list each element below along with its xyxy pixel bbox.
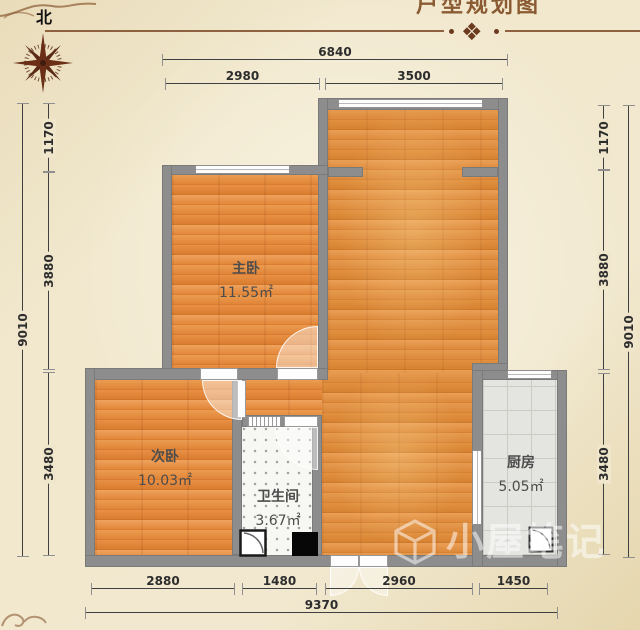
dim-bottom-seg3: 2960	[325, 588, 473, 589]
dim-right-total: 9010	[628, 105, 629, 558]
bathroom-door-icon	[239, 529, 267, 557]
decorative-dot	[494, 29, 499, 34]
wall	[318, 98, 328, 380]
dim-top-seg1: 2980	[165, 83, 320, 84]
dim-top-seg2: 3500	[325, 83, 503, 84]
room-name: 厨房	[471, 452, 571, 472]
master-bedroom-door	[277, 368, 318, 380]
room-area: 3.67㎡	[228, 510, 328, 530]
dim-right-seg2: 3880	[603, 170, 604, 370]
dim-bottom-seg2: 1480	[242, 588, 317, 589]
duct-shaft	[292, 532, 318, 556]
floorplan-canvas: 户型规划图 ❖ 北	[0, 0, 640, 630]
cube-logo-icon	[392, 518, 438, 566]
dim-right-seg1: 1170	[603, 105, 604, 170]
room-area: 11.55㎡	[186, 282, 306, 302]
bathroom-sliding-panel	[247, 416, 281, 427]
wall	[162, 165, 172, 380]
decorative-divider-right	[505, 30, 640, 32]
compass-rose-icon	[12, 32, 74, 94]
room-name: 主卧	[186, 258, 306, 278]
room-label-kitchen: 厨房 5.05㎡	[471, 452, 571, 496]
balcony-double-door	[330, 555, 388, 567]
decorative-divider-left	[45, 30, 444, 32]
north-label: 北	[36, 4, 52, 28]
decorative-dot	[449, 29, 454, 34]
decorative-ornament: ❖	[461, 20, 483, 44]
room-label-second: 次卧 10.03㎡	[105, 446, 225, 490]
dim-bottom-seg1: 2880	[91, 588, 235, 589]
door-swing-arc	[330, 567, 359, 596]
wall-stub	[462, 167, 498, 177]
window	[195, 165, 290, 174]
dim-left-total: 9010	[22, 103, 23, 557]
dim-bottom-total: 9370	[85, 612, 558, 613]
room-area: 10.03㎡	[105, 470, 225, 490]
room-area: 5.05㎡	[471, 476, 571, 496]
dim-left-seg3: 3480	[48, 372, 49, 556]
dim-left-seg2: 3880	[48, 172, 49, 370]
room-name: 卫生间	[228, 486, 328, 506]
watermark-text: 小屋笔记	[446, 523, 606, 561]
wall-stub	[328, 167, 363, 177]
living-room-floor	[328, 110, 498, 373]
wall	[85, 368, 95, 567]
hallway-floor	[242, 380, 322, 417]
dim-top-total: 6840	[162, 59, 508, 60]
decorative-title: 户型规划图	[416, 0, 541, 19]
wall	[498, 98, 508, 380]
corner-flourish-bottom-left	[0, 596, 60, 630]
window	[338, 99, 483, 108]
room-label-master: 主卧 11.55㎡	[186, 258, 306, 302]
room-name: 次卧	[105, 446, 225, 466]
dim-left-seg1: 1170	[48, 103, 49, 172]
dim-bottom-seg4: 1450	[479, 588, 548, 589]
room-label-bath: 卫生间 3.67㎡	[228, 486, 328, 530]
second-bedroom-door	[200, 368, 238, 380]
bathroom-door	[284, 416, 318, 427]
window	[507, 370, 552, 379]
watermark: 小屋笔记	[392, 518, 606, 566]
